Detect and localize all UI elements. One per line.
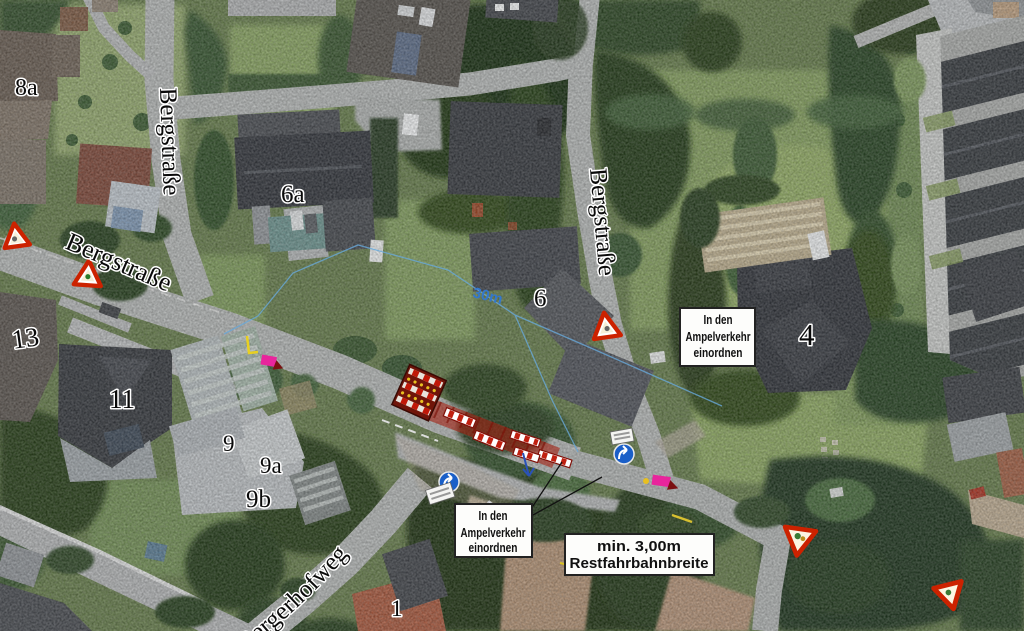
svg-text:13: 13 [10, 321, 41, 354]
svg-text:einordnen: einordnen [694, 345, 743, 360]
svg-text:Ampelverkehr: Ampelverkehr [461, 525, 526, 540]
svg-text:9a: 9a [260, 453, 282, 478]
svg-text:In den: In den [704, 312, 733, 327]
svg-text:9: 9 [223, 431, 235, 456]
svg-text:11: 11 [109, 384, 135, 414]
svg-text:6a: 6a [281, 181, 305, 208]
svg-text:4: 4 [799, 317, 815, 352]
svg-text:min. 3,00m: min. 3,00m [597, 538, 681, 555]
svg-text:6: 6 [534, 285, 547, 312]
svg-text:9b: 9b [246, 486, 271, 513]
svg-text:1: 1 [391, 596, 403, 621]
svg-text:In den: In den [479, 508, 508, 523]
svg-text:Restfahrbahnbreite: Restfahrbahnbreite [570, 555, 709, 572]
svg-text:Bergstraße: Bergstraße [154, 87, 185, 196]
svg-text:8a: 8a [15, 75, 38, 101]
svg-text:einordnen: einordnen [469, 540, 518, 555]
svg-text:Ampelverkehr: Ampelverkehr [686, 329, 751, 344]
